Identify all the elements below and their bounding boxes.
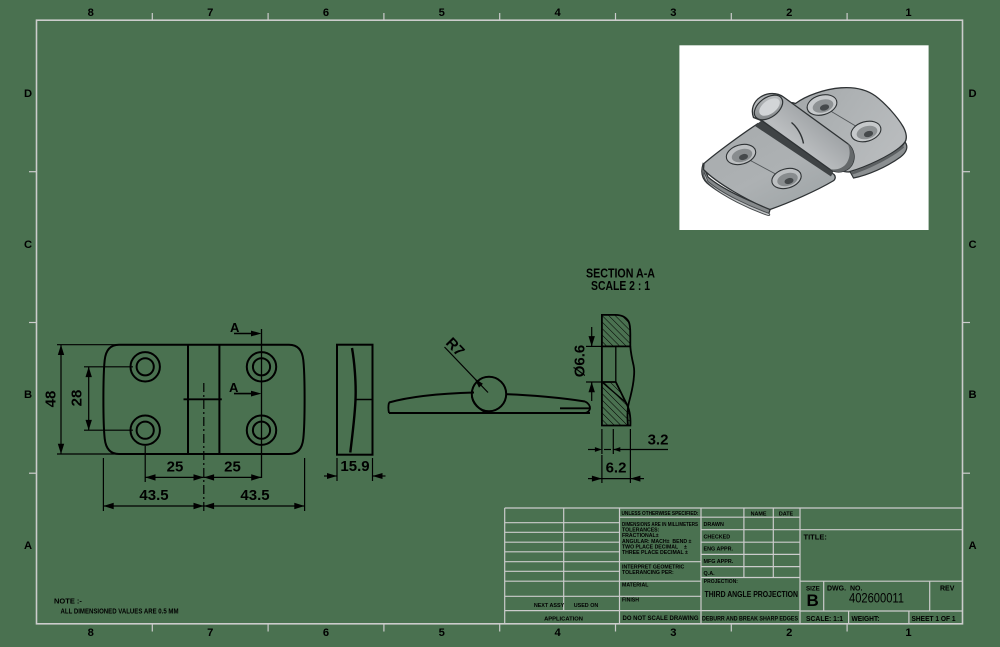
svg-text:NAME: NAME bbox=[751, 512, 767, 518]
svg-text:4: 4 bbox=[554, 627, 561, 639]
svg-text:NOTE :-: NOTE :- bbox=[54, 597, 82, 606]
svg-text:ENG APPR.: ENG APPR. bbox=[704, 547, 734, 553]
svg-text:A: A bbox=[24, 540, 32, 552]
svg-text:C: C bbox=[24, 239, 32, 251]
svg-text:25: 25 bbox=[224, 459, 241, 476]
svg-text:2: 2 bbox=[786, 7, 792, 19]
svg-text:USED ON: USED ON bbox=[574, 603, 599, 609]
svg-text:4: 4 bbox=[554, 7, 561, 19]
svg-text:8: 8 bbox=[88, 7, 94, 19]
svg-text:B: B bbox=[968, 389, 976, 401]
svg-text:3: 3 bbox=[670, 627, 676, 639]
svg-text:8: 8 bbox=[88, 627, 94, 639]
svg-text:3.2: 3.2 bbox=[648, 432, 669, 449]
svg-text:B: B bbox=[807, 591, 819, 610]
svg-text:43.5: 43.5 bbox=[139, 487, 168, 504]
svg-text:15.9: 15.9 bbox=[340, 458, 369, 475]
svg-text:A: A bbox=[968, 540, 976, 552]
svg-text:FINISH: FINISH bbox=[622, 598, 639, 604]
svg-text:6.2: 6.2 bbox=[606, 460, 627, 477]
svg-text:43.5: 43.5 bbox=[240, 487, 269, 504]
svg-text:6: 6 bbox=[323, 627, 329, 639]
svg-text:SCALE 2 : 1: SCALE 2 : 1 bbox=[591, 279, 650, 293]
svg-text:D: D bbox=[24, 88, 32, 100]
svg-text:SCALE: 1:1: SCALE: 1:1 bbox=[806, 614, 844, 623]
svg-text:APPLICATION: APPLICATION bbox=[544, 617, 583, 623]
svg-text:MFG APPR.: MFG APPR. bbox=[704, 559, 734, 565]
svg-text:48: 48 bbox=[43, 391, 60, 408]
svg-text:6: 6 bbox=[323, 7, 329, 19]
svg-text:DO NOT SCALE DRAWING: DO NOT SCALE DRAWING bbox=[623, 616, 699, 622]
svg-text:DEBURR AND BREAK SHARP EDGES: DEBURR AND BREAK SHARP EDGES bbox=[702, 616, 798, 623]
svg-text:C: C bbox=[968, 239, 976, 251]
svg-text:7: 7 bbox=[207, 7, 213, 19]
svg-text:THIRD ANGLE PROJECTION: THIRD ANGLE PROJECTION bbox=[705, 589, 799, 599]
svg-text:B: B bbox=[24, 389, 32, 401]
svg-text:REV: REV bbox=[940, 586, 955, 593]
svg-text:5: 5 bbox=[439, 7, 445, 19]
svg-text:3: 3 bbox=[670, 7, 676, 19]
svg-text:7: 7 bbox=[207, 627, 213, 639]
svg-text:CHECKED: CHECKED bbox=[704, 535, 731, 541]
svg-text:WEIGHT:: WEIGHT: bbox=[852, 614, 880, 623]
svg-text:D: D bbox=[968, 88, 976, 100]
svg-text:MATERIAL: MATERIAL bbox=[622, 583, 649, 589]
svg-text:2: 2 bbox=[786, 627, 792, 639]
svg-text:5: 5 bbox=[439, 627, 445, 639]
svg-text:SHEET 1 OF 1: SHEET 1 OF 1 bbox=[912, 614, 957, 623]
svg-text:ALL DIMENSIONED VALUES ARE 0.5: ALL DIMENSIONED VALUES ARE 0.5 MM bbox=[61, 607, 179, 616]
svg-text:THREE PLACE DECIMAL ±: THREE PLACE DECIMAL ± bbox=[622, 550, 688, 556]
svg-text:Ø6.6: Ø6.6 bbox=[572, 345, 589, 378]
svg-text:DRAWN: DRAWN bbox=[704, 522, 724, 528]
svg-text:NEXT ASSY: NEXT ASSY bbox=[534, 603, 565, 609]
svg-text:1: 1 bbox=[905, 7, 911, 19]
svg-text:25: 25 bbox=[167, 459, 184, 476]
svg-text:TOLERANCING PER:: TOLERANCING PER: bbox=[622, 570, 674, 576]
svg-text:PROJECTION:: PROJECTION: bbox=[704, 579, 739, 585]
svg-text:1: 1 bbox=[905, 627, 911, 639]
svg-text:28: 28 bbox=[69, 390, 86, 407]
svg-text:A: A bbox=[230, 320, 240, 335]
svg-text:Q.A.: Q.A. bbox=[704, 571, 716, 577]
svg-text:TITLE:: TITLE: bbox=[804, 533, 827, 542]
svg-text:UNLESS OTHERWISE SPECIFIED:: UNLESS OTHERWISE SPECIFIED: bbox=[622, 511, 699, 517]
svg-text:A: A bbox=[229, 380, 239, 395]
svg-text:DATE: DATE bbox=[779, 512, 794, 518]
svg-text:402600011: 402600011 bbox=[849, 591, 904, 606]
